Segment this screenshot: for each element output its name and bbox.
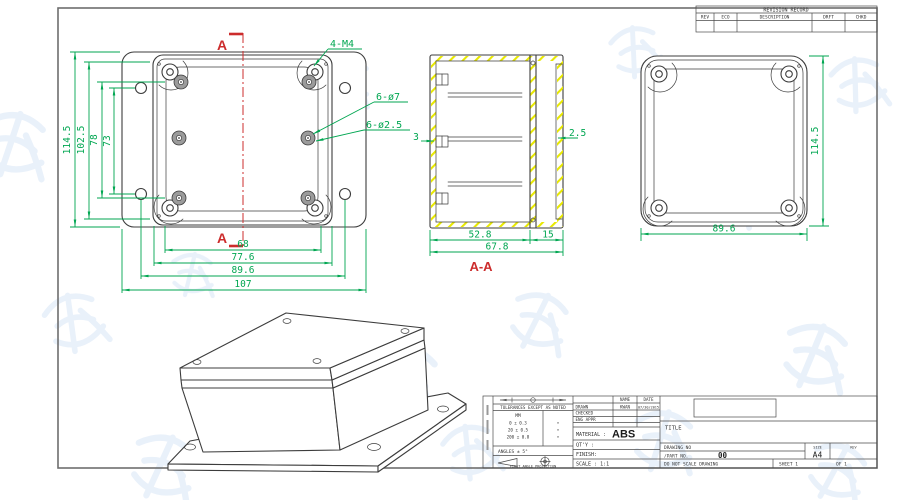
callout-6-d2-5: 6-ø2.5 xyxy=(366,120,402,131)
section-dimensions: 52.8 15 67.8 xyxy=(430,230,563,257)
engineering-drawing: A A 4-M4 6-ø7 6-ø2.5 114.5 102.5 xyxy=(0,0,900,500)
dim-89-6: 89.6 xyxy=(232,265,255,276)
dim-back-89-6: 89.6 xyxy=(713,224,736,235)
hatch-bottom xyxy=(431,222,562,227)
date-header: DATE xyxy=(643,397,654,402)
dim-15: 15 xyxy=(542,230,553,241)
finish-label: FINISH: xyxy=(576,452,597,458)
isometric-view xyxy=(168,313,466,472)
tolerance-mark-2: • xyxy=(557,428,560,433)
name-header: NAME xyxy=(620,397,631,402)
projection-label: FIRST ANGLE PROJECTION xyxy=(510,464,556,468)
hatch-left xyxy=(431,56,436,227)
tolerance-block: TOLERANCES EXCEPT AS NOTED MM 0 ± 0.3 20… xyxy=(493,398,573,469)
revision-table: REVISION RECORD REV ECO DESCRIPTION DRFT… xyxy=(696,6,877,32)
angles-tolerance: ANGLES ± 5° xyxy=(498,449,528,455)
dim-68: 68 xyxy=(237,239,249,250)
col-drft: DRFT xyxy=(823,15,834,21)
drawn-label: DRAWN xyxy=(576,404,589,409)
dim-67-8: 67.8 xyxy=(486,242,509,253)
dim-3: 3 xyxy=(413,132,419,143)
sheet-label: SHEET 1 xyxy=(779,462,798,468)
tolerance-row-1: 0 ± 0.3 xyxy=(509,421,527,426)
logo-box xyxy=(694,399,776,417)
drawn-name: KWAN xyxy=(620,404,631,409)
tolerance-unit: MM xyxy=(515,413,521,419)
col-description: DESCRIPTION xyxy=(760,15,790,21)
dim-2-5: 2.5 xyxy=(569,128,586,139)
dim-102-5: 102.5 xyxy=(76,126,87,155)
dim-107: 107 xyxy=(234,279,251,290)
dim-78: 78 xyxy=(89,134,100,146)
rev-label: REV xyxy=(850,445,857,449)
drawn-date: 07/30/2015 xyxy=(638,405,659,409)
tolerance-mark-1: • xyxy=(557,421,560,426)
engineering-drawing-page: A A 4-M4 6-ø7 6-ø2.5 114.5 102.5 xyxy=(0,0,900,500)
title-block: TOLERANCES EXCEPT AS NOTED MM 0 ± 0.3 20… xyxy=(483,396,877,468)
section-view: 3 2.5 52.8 15 67.8 A-A xyxy=(413,55,586,274)
callout-6-d7: 6-ø7 xyxy=(376,92,400,103)
qty-label: QT'Y : xyxy=(576,443,594,449)
dim-77-6: 77.6 xyxy=(232,252,255,263)
checked-label: CHECKED xyxy=(576,411,594,416)
material-label: MATERIAL : xyxy=(576,432,606,438)
col-rev: REV xyxy=(701,15,709,21)
tolerance-mark-3: • xyxy=(557,435,560,440)
hatch-top xyxy=(431,56,562,61)
section-marker-bottom: A xyxy=(217,230,227,246)
dim-73: 73 xyxy=(102,135,113,146)
callout-4-m4: 4-M4 xyxy=(330,39,354,50)
col-eco: ECO xyxy=(721,15,729,21)
size-value: A4 xyxy=(813,451,823,460)
back-view: 89.6 114.5 xyxy=(641,56,829,241)
tolerance-row-3: 200 ± 0.8 xyxy=(507,435,530,440)
hatch-lid xyxy=(557,56,563,227)
section-title: A-A xyxy=(469,259,493,274)
front-view: A A 4-M4 6-ø7 6-ø2.5 114.5 102.5 xyxy=(62,33,410,293)
dim-114-5: 114.5 xyxy=(62,126,73,155)
revision-table-title: REVISION RECORD xyxy=(763,7,808,13)
material-value: ABS xyxy=(612,429,635,441)
col-chkd: CHKD xyxy=(856,15,867,21)
dim-52-8: 52.8 xyxy=(469,230,492,241)
do-not-scale-note: DO NOT SCALE DRAWING xyxy=(664,462,718,468)
section-marker-top: A xyxy=(217,37,227,53)
of-label: OF 1 xyxy=(836,462,847,468)
dim-back-114-5: 114.5 xyxy=(810,127,821,156)
scale-label: SCALE : 1:1 xyxy=(576,462,609,468)
signature-block: NAME DATE DRAWN KWAN 07/30/2015 CHECKED … xyxy=(573,396,660,427)
tolerance-row-2: 20 ± 0.5 xyxy=(508,428,529,433)
eng-appr-label: ENG APPR xyxy=(576,417,597,422)
tolerance-note: TOLERANCES EXCEPT AS NOTED xyxy=(500,405,566,410)
size-label: SIZE xyxy=(813,445,821,449)
drawing-no-label: DRAWING NO xyxy=(664,445,691,451)
hatch-seam xyxy=(530,56,536,227)
title-label: TITLE xyxy=(665,426,682,432)
